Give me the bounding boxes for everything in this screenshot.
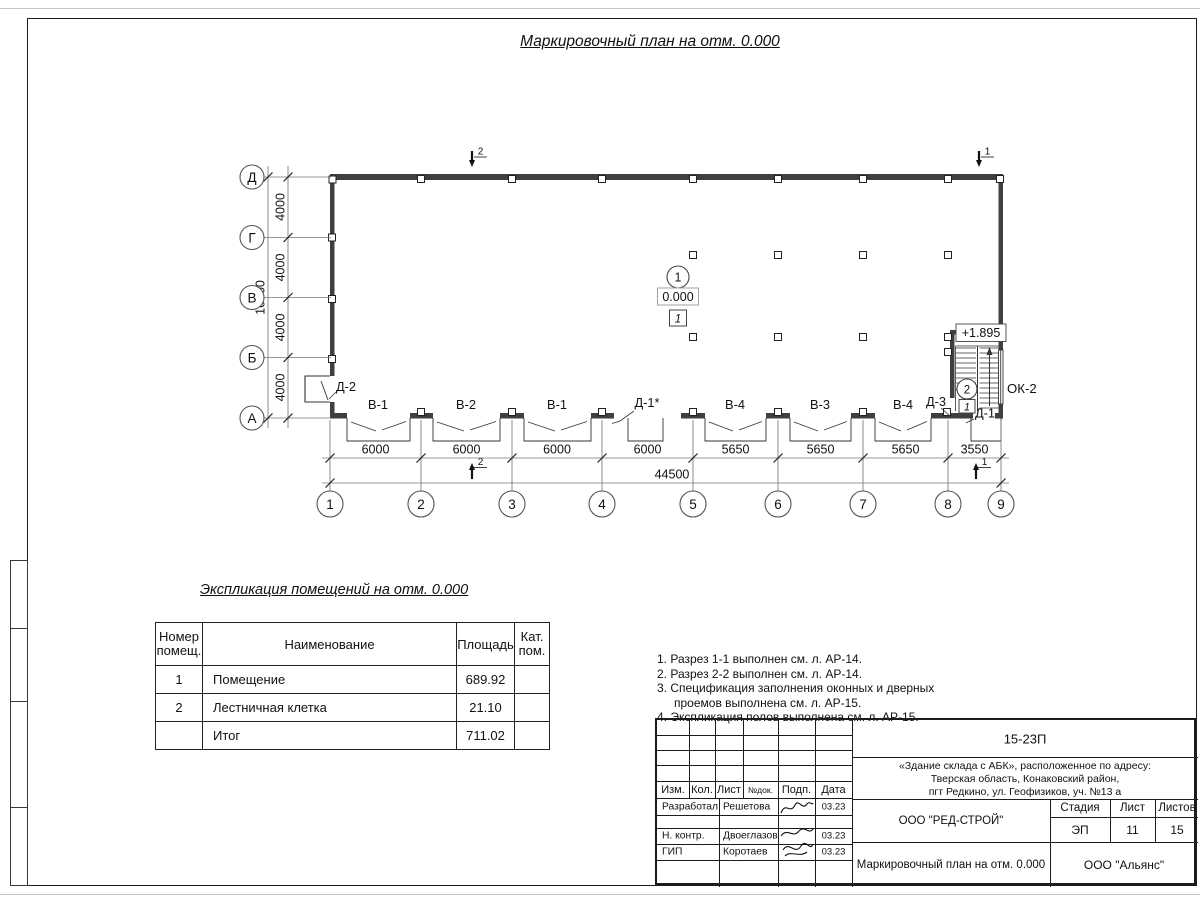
dim-4000: 4000 [274,374,288,402]
dim-bay: 5650 [892,443,920,457]
window-bays [347,418,1001,441]
dim-bay: 6000 [543,443,571,457]
bay-label: В-4 [725,397,745,412]
col-izm: Изм. [661,784,685,796]
section-mark-1-bottom: 1 [973,457,991,479]
column-label: 5 [689,497,697,512]
project-address: «Здание склада с АБК», расположенное по … [857,760,1193,799]
bay-label: В-3 [810,397,830,412]
column-label: 1 [326,497,334,512]
bay-label: В-4 [893,397,913,412]
door-label-d3: Д-3 [926,394,946,409]
section-mark-2-bottom: 2 [469,457,487,479]
cell-area: 689.92 [457,666,515,694]
room1-number: 1 [675,271,682,285]
role-date: 03.23 [822,847,846,858]
cell-num: 2 [156,694,203,722]
role-name: Решетова [723,802,770,813]
room1-elevation: 0.000 [662,290,693,304]
bay-label: Д-1* [634,395,659,410]
note-line: 1. Разрез 1-1 выполнен см. л. АР-14. [657,652,977,667]
table-row: 2 Лестничная клетка 21.10 [156,694,550,722]
role-label: Н. контр. [662,831,705,842]
room1-floor-mark: 1 [675,313,681,325]
org-name: ООО "РЕД-СТРОЙ" [899,815,1004,827]
column-label: 4 [598,497,606,512]
axis-label: Д [247,170,256,185]
header-name: Наименование [203,623,457,666]
stair-elevation: +1.895 [962,326,1001,340]
cell-cat [515,694,550,722]
cell-area: 711.02 [457,722,515,750]
role-date: 03.23 [822,831,846,842]
dim-total: 44500 [655,468,690,482]
room1-marks: 1 0.000 1 [658,266,699,326]
door-label-d2: Д-2 [336,379,356,394]
stair-enclosure: +1.895 [950,324,1006,411]
dim-bay: 5650 [722,443,750,457]
section-mark-1-top: 1 [976,147,994,168]
header-num: Номер помещ. [156,623,203,666]
dim-4000: 4000 [274,254,288,282]
axis-label: Б [248,350,257,365]
dim-bay: 5650 [807,443,835,457]
signature [779,826,815,860]
col-data: Дата [821,784,845,796]
stair-number: 2 [964,384,970,396]
header-area: Площадь [457,623,515,666]
sheet-label: Лист [1120,802,1145,814]
drawing-sheet: { "page": { "main_title": "Маркировочный… [0,0,1200,900]
column-label: 7 [859,497,867,512]
role-label: Разработал [662,802,718,813]
svg-text:1: 1 [982,457,988,468]
section-marks: 2 1 2 1 [469,147,994,480]
notes: 1. Разрез 1-1 выполнен см. л. АР-14. 2. … [657,652,977,725]
table-row: Итог 711.02 [156,722,550,750]
porch-d2 [305,376,330,402]
stage-label: Стадия [1060,802,1099,814]
cell-name: Итог [203,722,457,750]
doc-number: 15-23П [1004,732,1047,747]
table-header-row: Номер помещ. Наименование Площадь Кат. п… [156,623,550,666]
column-label: 9 [997,497,1005,512]
cell-cat [515,722,550,750]
column-label: 2 [417,497,425,512]
stage-value: ЭП [1071,823,1088,837]
cell-cat [515,666,550,694]
bay-label: В-1 [547,397,567,412]
sheet-value: 11 [1126,823,1138,837]
col-podp: Подп. [782,784,811,796]
column-label: 8 [944,497,952,512]
title-block: Изм. Кол. Лист №док. Подп. Дата Разработ… [655,718,1196,885]
signature [779,798,815,818]
explication-table: Номер помещ. Наименование Площадь Кат. п… [155,622,550,750]
role-label: ГИП [662,847,682,858]
role-name: Двоеглазов [723,831,778,842]
axis-label: В [247,290,256,305]
sheets-label: Листов [1158,802,1195,814]
window-ok2-symbol [999,350,1004,404]
svg-text:2: 2 [478,457,484,468]
dim-bay: 6000 [453,443,481,457]
bay-label: В-2 [456,397,476,412]
dim-bay: 6000 [362,443,390,457]
bay-label: В-1 [368,397,388,412]
col-kol: Кол. [691,784,713,796]
role-name: Коротаев [723,847,767,858]
table-row: 1 Помещение 689.92 [156,666,550,694]
dim-4000: 4000 [274,314,288,342]
cell-num [156,722,203,750]
col-list: Лист [717,784,741,796]
cell-num: 1 [156,666,203,694]
stair-floor-mark: 1 [964,401,970,413]
cell-name: Помещение [203,666,457,694]
window-label-ok2: ОК-2 [1007,381,1037,396]
cell-name: Лестничная клетка [203,694,457,722]
stair-marks: 2 1 [957,379,977,413]
dim-bay: 6000 [634,443,662,457]
note-line: 3. Спецификация заполнения оконных и две… [657,681,977,696]
axis-label: Г [248,230,256,245]
vertical-axis-grid: 4000 4000 4000 4000 16000 Д Г В Б А [240,165,331,430]
column-label: 6 [774,497,782,512]
header-cat: Кат. пом. [515,623,550,666]
column-label: 3 [508,497,516,512]
section-mark-2-top: 2 [469,147,487,168]
col-ndok: №док. [748,785,773,795]
svg-text:1: 1 [985,147,991,158]
sheets-value: 15 [1170,823,1183,837]
contractor-name: ООО "Альянс" [1084,858,1164,872]
axis-label: А [247,411,256,426]
drawing-title: Маркировочный план на отм. 0.000 [857,859,1045,871]
dim-4000: 4000 [274,193,288,221]
horizontal-dimension-grid: 6000 6000 6000 6000 5650 5650 5650 3550 … [317,420,1014,517]
note-line: 2. Разрез 2-2 выполнен см. л. АР-14. [657,667,977,682]
explication-title: Экспликация помещений на отм. 0.000 [200,582,520,598]
door-label-d1: Д-1 [975,406,995,421]
svg-text:2: 2 [478,147,484,158]
dim-bay: 3550 [961,443,989,457]
note-line: проемов выполнена см. л. АР-15. [657,696,977,711]
cell-area: 21.10 [457,694,515,722]
role-date: 03.23 [822,802,846,813]
